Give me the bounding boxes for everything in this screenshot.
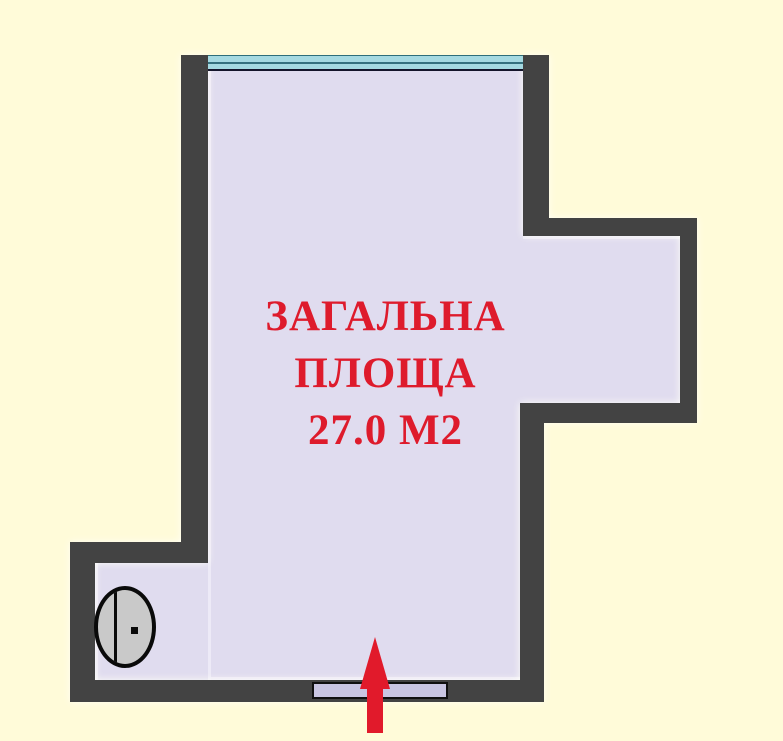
- entrance-arrow-shaft: [367, 685, 383, 733]
- fixture-divider-line: [114, 586, 117, 668]
- floor-plan-canvas: ЗАГАЛЬНА ПЛОЩА 27.0 М2: [0, 0, 783, 741]
- wall-step-bottom: [520, 403, 697, 423]
- entrance-arrow-icon: [360, 637, 390, 689]
- wall-step-top: [523, 218, 697, 236]
- wall-bottom: [70, 680, 544, 702]
- area-label-line1: ЗАГАЛЬНА: [228, 288, 543, 345]
- area-label-line2: ПЛОЩА: [228, 345, 543, 402]
- wall-step-right: [680, 218, 697, 423]
- window-pane-divider: [208, 62, 523, 64]
- wall-right-upper: [523, 55, 549, 236]
- area-label: ЗАГАЛЬНА ПЛОЩА 27.0 М2: [228, 288, 543, 459]
- wall-step-left: [70, 542, 208, 563]
- oval-fixture-icon: [94, 586, 156, 668]
- wall-left-lower: [70, 542, 95, 702]
- wall-left: [181, 55, 208, 563]
- fixture-drain-dot: [131, 627, 138, 634]
- area-value: 27.0 М2: [228, 402, 543, 459]
- window-band-icon: [208, 55, 523, 71]
